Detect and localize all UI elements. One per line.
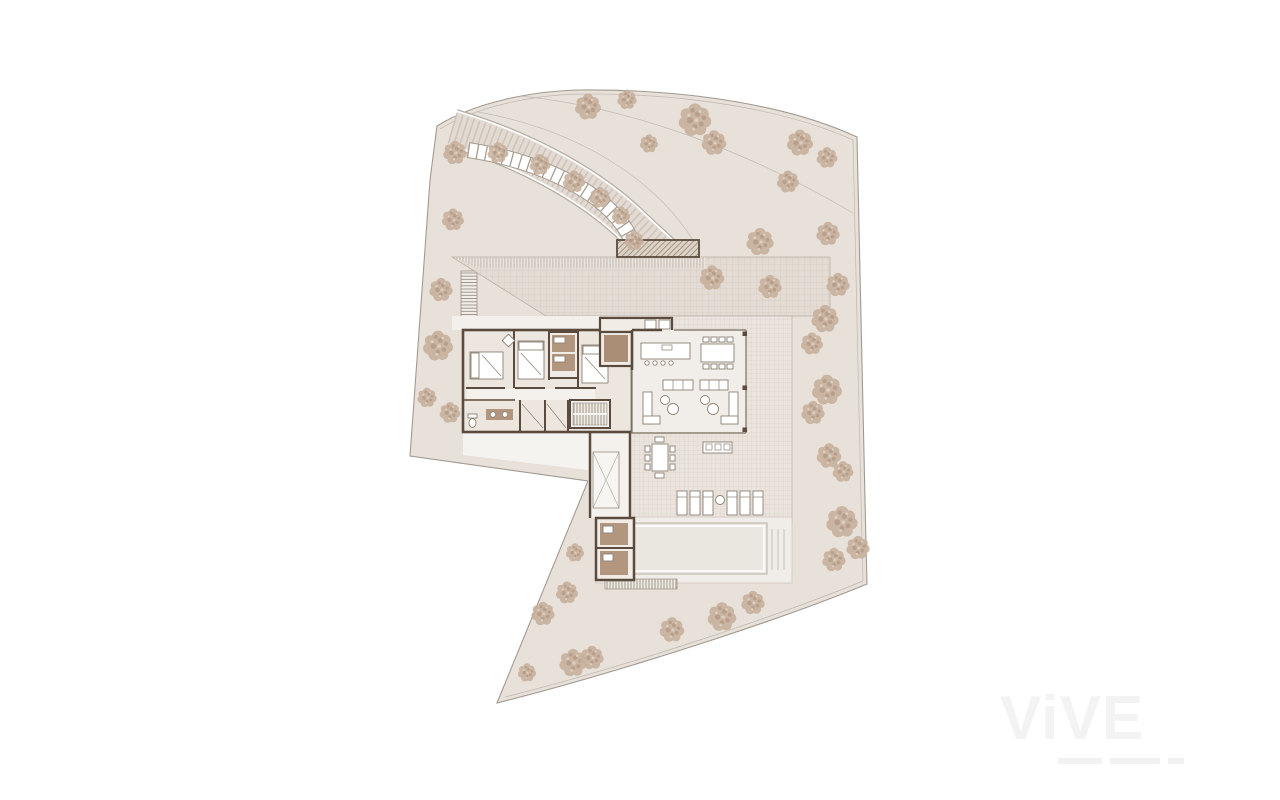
bed-2 bbox=[518, 341, 544, 379]
pool-house bbox=[596, 518, 634, 580]
corridor bbox=[467, 389, 595, 400]
outdoor-kitchen bbox=[703, 442, 732, 453]
gallery-corridor bbox=[588, 432, 632, 518]
pool bbox=[631, 523, 767, 574]
entry-floor bbox=[604, 335, 628, 362]
site-plan-page: ViVE bbox=[0, 0, 1280, 800]
floor-plan-svg bbox=[0, 0, 1280, 800]
living-room bbox=[632, 330, 747, 433]
staircase bbox=[570, 400, 610, 428]
bed-1 bbox=[470, 352, 503, 379]
bathroom-pod bbox=[549, 332, 578, 378]
forecourt-striped-band bbox=[452, 257, 705, 268]
